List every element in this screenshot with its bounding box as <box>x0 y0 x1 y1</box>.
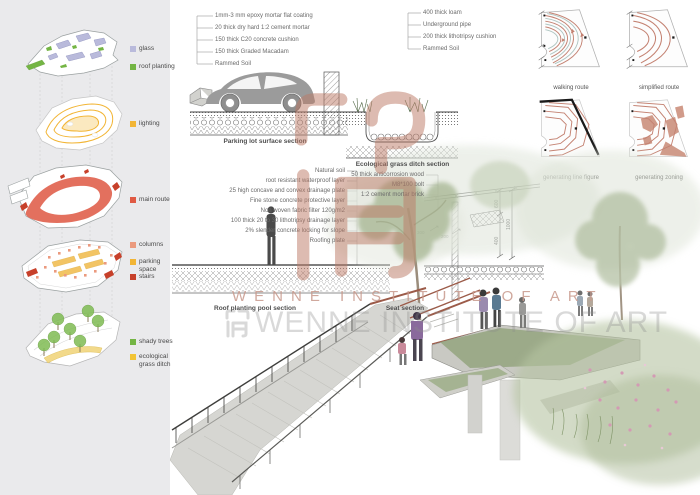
planter-edge-structure <box>540 380 620 414</box>
legend-item-lighting: lighting <box>130 120 176 128</box>
dim-600: 600 <box>494 199 500 208</box>
diagram-walking-route: walking route <box>528 6 614 91</box>
diagram-generating-zoning: generating zoning <box>616 96 700 181</box>
dim-200: 200 <box>441 234 449 239</box>
person-walker-1 <box>479 290 488 330</box>
legend-label: ecological grass ditch <box>139 353 176 368</box>
legend-label: lighting <box>139 120 160 128</box>
dim-1000: 1000 <box>506 219 512 230</box>
callout-line: 400 thick loam <box>423 7 496 19</box>
person-walker-3 <box>519 297 526 328</box>
flower-meadow <box>513 320 700 485</box>
axon-connector-lines <box>40 50 112 356</box>
seat-callout-leaders <box>426 175 438 208</box>
roof-section-label: Roof planting pool section <box>195 305 315 312</box>
column-dots <box>36 244 113 279</box>
diagram-label: simplified route <box>616 85 700 91</box>
parking-space-swatch <box>130 259 136 265</box>
watermark-text-primary: WENNE INSTITUTE OF ART <box>232 288 604 305</box>
callout-line: Roofing plate <box>187 236 345 246</box>
tree-icons <box>44 314 98 356</box>
axon-layer-plan <box>22 240 122 292</box>
legend-label: roof planting <box>139 63 175 71</box>
ditch-callout-leaders <box>408 13 421 49</box>
presentation-board: glass roof planting lighting main route … <box>0 0 700 495</box>
legend-item-main-route: main route <box>130 196 176 204</box>
roof-planting-shapes <box>26 45 104 70</box>
dim-300: 300 <box>417 230 425 235</box>
legend-item-shady-trees: shady trees <box>130 338 176 346</box>
car-silhouette <box>206 72 315 112</box>
concrete-pier <box>468 375 482 433</box>
legend-label: main route <box>139 196 170 204</box>
legend-label: columns <box>139 241 163 249</box>
plank-lines <box>188 315 410 478</box>
railing-left <box>172 304 370 443</box>
glass-shapes <box>48 33 106 61</box>
axon-layer-lighting <box>36 96 122 150</box>
flowers <box>584 364 678 450</box>
walking-route-drawing <box>528 6 612 80</box>
glass-swatch <box>130 46 136 52</box>
concrete-pier <box>500 380 520 460</box>
parking-callouts: 1mm-3 mm epoxy mortar flat coating 20 th… <box>215 10 313 70</box>
person-walker-2 <box>492 288 501 328</box>
person-mother <box>411 312 423 361</box>
shady-trees-swatch <box>130 339 136 345</box>
callout-line: 20 thick dry hard 1:2 cement mortar <box>215 22 313 34</box>
parking-ground-section <box>190 72 348 135</box>
roof-planting-swatch <box>130 64 136 70</box>
callout-line: 150 thick Graded Macadam <box>215 46 313 58</box>
railing-right <box>232 316 428 489</box>
tree-center <box>358 179 458 320</box>
columns-swatch <box>130 242 136 248</box>
diagram-label: generating line figure <box>528 175 614 181</box>
boardwalk <box>170 298 428 495</box>
curb-stone-sketch <box>190 88 212 106</box>
lighting-swatch <box>130 121 136 127</box>
dim-400: 400 <box>494 236 500 245</box>
tree-small <box>470 161 530 209</box>
callout-line: 2% slender concrete locking for slope <box>187 226 345 236</box>
grass-ditch-section-drawing <box>342 97 458 158</box>
legend-item-glass: glass <box>130 45 176 53</box>
watermark-text: WENNE INSTITUTE OF ART <box>255 306 668 340</box>
dimension-lines <box>430 188 515 260</box>
legend-item-columns: columns <box>130 241 176 249</box>
plants-sketch <box>353 97 428 112</box>
roof-pool-section-drawing <box>172 265 390 293</box>
person-child <box>398 337 407 365</box>
main-route-swatch <box>130 197 136 203</box>
stairs-swatch <box>130 274 136 280</box>
seat-section-drawing: 600 1000 400 300 200 <box>417 184 544 300</box>
generating-zoning-drawing <box>616 96 700 170</box>
diagram-generating-line: generating line figure <box>528 96 614 181</box>
planter-beds <box>420 325 640 460</box>
callout-line: 200 thick lithotripsy cushion <box>423 31 496 43</box>
tree-right <box>575 192 666 320</box>
callout-line: 50 thick anticorrosion wood <box>312 170 424 180</box>
diagram-label: walking route <box>528 85 614 91</box>
callout-line: 1mm-3 mm epoxy mortar flat coating <box>215 10 313 22</box>
legend-label: parking space <box>139 258 176 273</box>
axon-layer-roof <box>26 30 118 76</box>
legend-label: glass <box>139 45 154 53</box>
grass-ditch-swatch <box>130 354 136 360</box>
wall-section <box>324 72 339 135</box>
ditch-section-label: Ecological grass ditch section <box>345 161 460 168</box>
axon-layer-trees <box>26 305 120 366</box>
grass-ditch-band <box>44 346 102 363</box>
generating-line-drawing <box>528 96 612 170</box>
stair-marks <box>20 169 120 211</box>
seat-section-label: Seat section <box>365 305 445 312</box>
legend-item-grass-ditch: ecological grass ditch <box>130 353 176 368</box>
diagram-label: generating zoning <box>616 175 700 181</box>
wenne-logo-mini-icon <box>224 308 250 338</box>
callout-line: 1:2 cement mortar brick <box>312 190 424 200</box>
callout-line: 150 thick C20 concrete cushion <box>215 34 313 46</box>
legend-label: shady trees <box>139 338 173 346</box>
ditch-callouts: 400 thick loam Underground pipe 200 thic… <box>423 7 496 55</box>
callout-line: M8*100 bolt <box>312 180 424 190</box>
callout-line: Underground pipe <box>423 19 496 31</box>
axon-panel: glass roof planting lighting main route … <box>0 0 170 495</box>
seat-callouts: 50 thick anticorrosion wood M8*100 bolt … <box>312 170 424 200</box>
simplified-route-drawing <box>616 6 700 80</box>
callout-line: Non woven fabric filter 120g/m2 <box>187 206 345 216</box>
plan-stairs <box>26 252 122 279</box>
parking-strips <box>52 249 104 277</box>
callout-line: 100 thick 20 to 30 lithotripsy drainage … <box>187 216 345 226</box>
axon-layer-route <box>8 165 122 228</box>
legend-item-parking-space: parking space <box>130 258 176 273</box>
diagram-simplified-route: simplified route <box>616 6 700 91</box>
callout-line: Rammed Soil <box>423 43 496 55</box>
legend-item-stairs: stairs <box>130 273 176 281</box>
parking-section-label: Parking lot surface section <box>195 138 335 145</box>
parking-callout-leaders <box>197 16 213 64</box>
legend-item-roof-planting: roof planting <box>130 63 176 71</box>
legend-label: stairs <box>139 273 155 281</box>
person-far-pair <box>577 291 593 317</box>
callout-line: Rammed Soil <box>215 58 313 70</box>
